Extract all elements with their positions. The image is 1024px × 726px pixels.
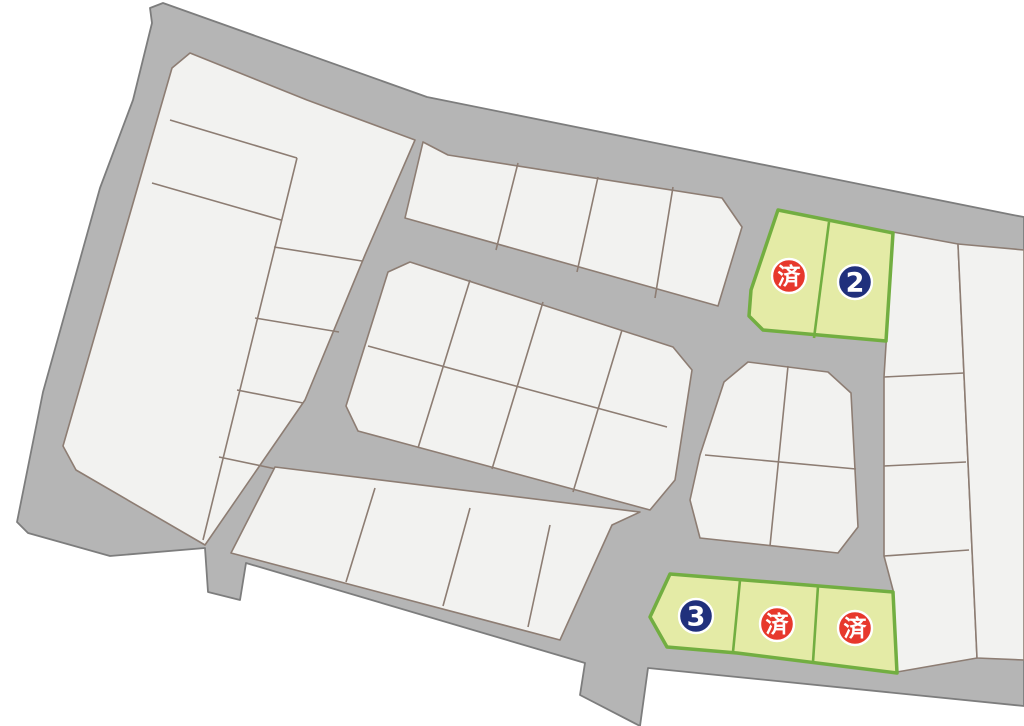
- sold-badge-label: 済: [844, 615, 868, 642]
- lot-number-label: 3: [687, 602, 706, 633]
- subdivision-map: 済 2 3 済 済: [0, 0, 1024, 726]
- lot-map-canvas: 済 2 3 済 済: [0, 0, 1024, 726]
- sold-badge-label: 済: [766, 611, 790, 638]
- marker-lot-2[interactable]: 2: [838, 265, 872, 299]
- lot-number-label: 2: [846, 268, 865, 299]
- sold-badge-label: 済: [778, 263, 802, 290]
- marker-sold-south-1[interactable]: 済: [760, 607, 794, 641]
- marker-sold-south-2[interactable]: 済: [838, 611, 872, 645]
- marker-lot-3[interactable]: 3: [679, 599, 713, 633]
- marker-sold-north[interactable]: 済: [772, 259, 806, 293]
